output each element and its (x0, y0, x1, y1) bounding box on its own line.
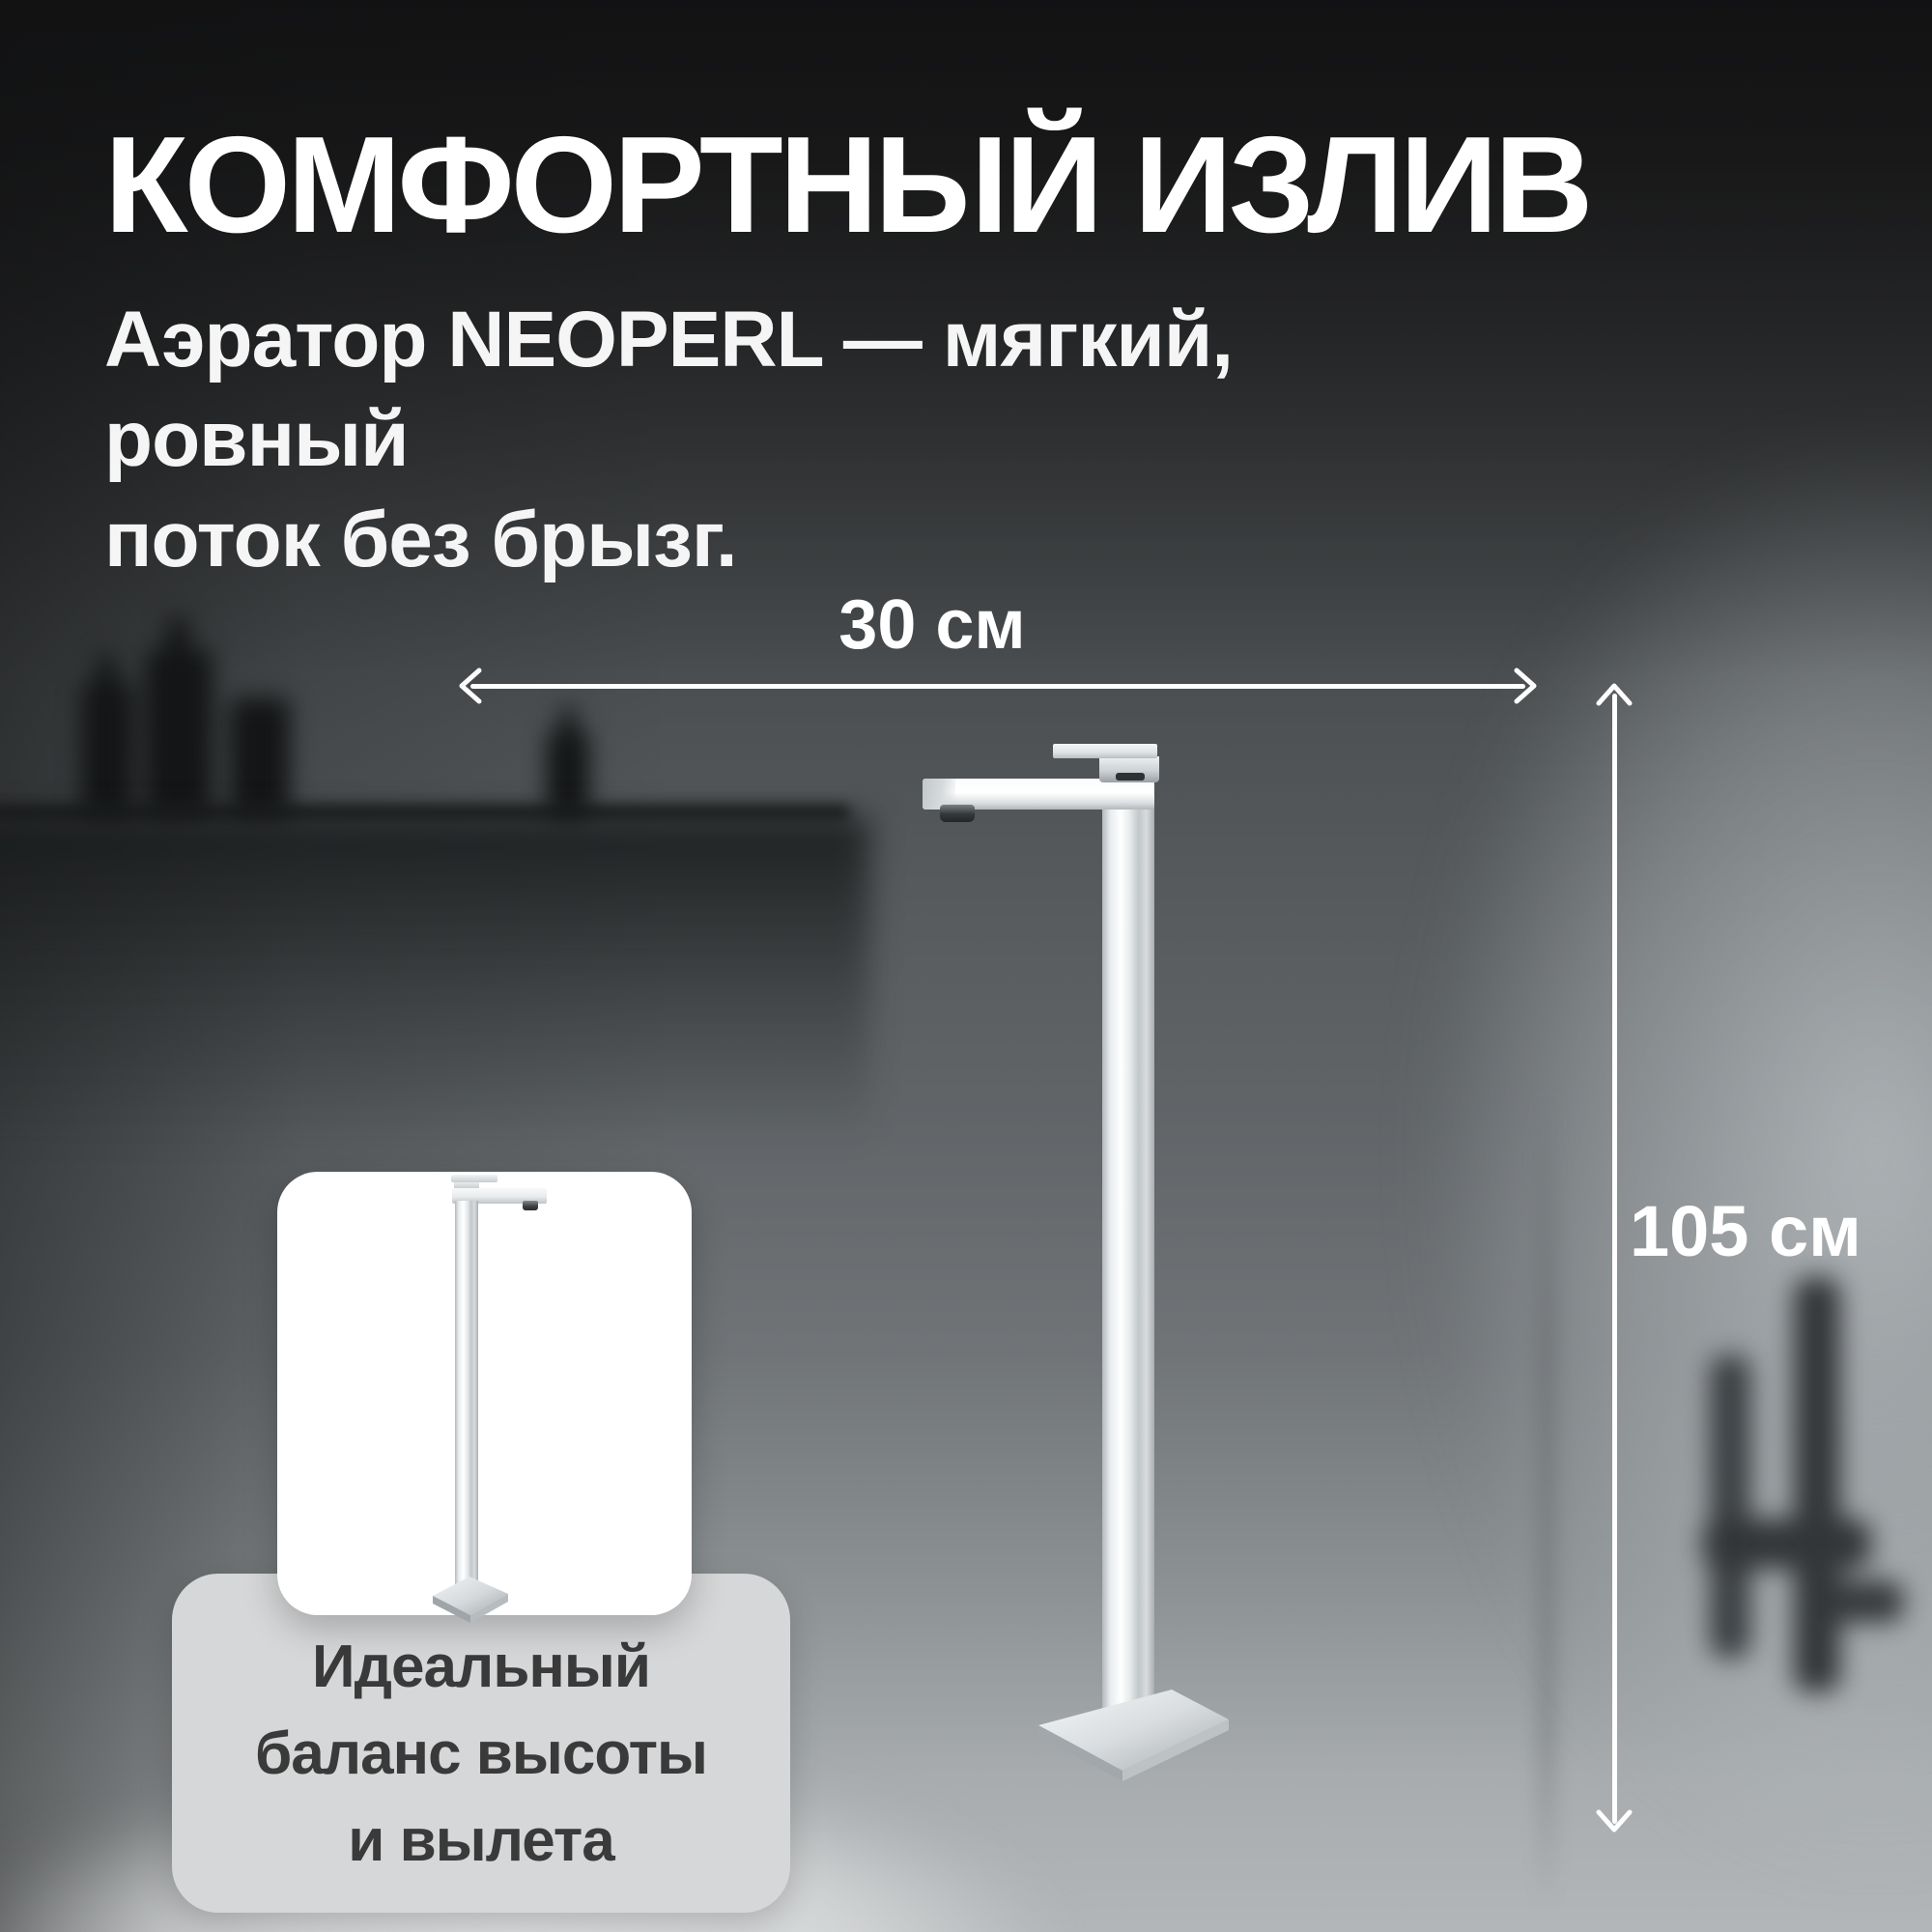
faucet-base-plate (1027, 1683, 1239, 1783)
bottle-neck-silhouette (97, 655, 116, 694)
bottle-silhouette (230, 697, 290, 817)
page-subtitle: Аэратор NEOPERL — мягкий, ровный поток б… (104, 290, 1553, 589)
product-thumbnail-card (277, 1172, 692, 1615)
arrowhead-right-icon (1503, 666, 1544, 706)
height-dimension-line (1612, 694, 1617, 1824)
feature-caption-line: Идеальный (172, 1624, 790, 1711)
arrowhead-down-icon (1594, 1799, 1634, 1839)
height-dimension-label: 105 см (1630, 1190, 1861, 1272)
bottle-silhouette (145, 649, 213, 817)
feature-caption-text: Идеальный баланс высоты и вылета (172, 1624, 790, 1885)
counter-shadow (0, 816, 869, 1145)
bottle-silhouette (81, 682, 133, 817)
mini-faucet-base (425, 1569, 522, 1631)
page-title: КОМФОРТНЫЙ ИЗЛИВ (104, 110, 1795, 261)
bottle-silhouette (547, 730, 589, 817)
feature-caption-line: и вылета (172, 1798, 790, 1885)
width-dimension-line (470, 684, 1525, 689)
subtitle-line: Аэратор NEOPERL — мягкий, ровный (104, 290, 1553, 490)
wall-corner-seam (1536, 1082, 1557, 1913)
bottle-neck-silhouette (166, 618, 189, 661)
product-infographic: Идеальный баланс высоты и вылета (0, 0, 1932, 1932)
bottle-neck-silhouette (560, 707, 576, 736)
arrowhead-up-icon (1594, 676, 1634, 717)
black-faucet-post (1794, 1277, 1840, 1692)
feature-caption-line: баланс высоты (172, 1711, 790, 1798)
width-dimension-label: 30 см (739, 585, 1125, 665)
mini-faucet-column (455, 1201, 478, 1587)
faucet-handle (1053, 744, 1157, 758)
faucet-cartridge-seam (1116, 773, 1145, 781)
subtitle-line: поток без брызг. (104, 490, 1553, 589)
black-faucet-handle (1829, 1580, 1904, 1623)
black-faucet-crossbar (1702, 1519, 1871, 1569)
arrowhead-left-icon (452, 666, 493, 706)
faucet-column (1102, 806, 1154, 1745)
mini-faucet-handle (451, 1175, 497, 1182)
mini-faucet-aerator (523, 1201, 538, 1210)
faucet-aerator (940, 805, 975, 822)
black-faucet-spout (1710, 1354, 1750, 1659)
